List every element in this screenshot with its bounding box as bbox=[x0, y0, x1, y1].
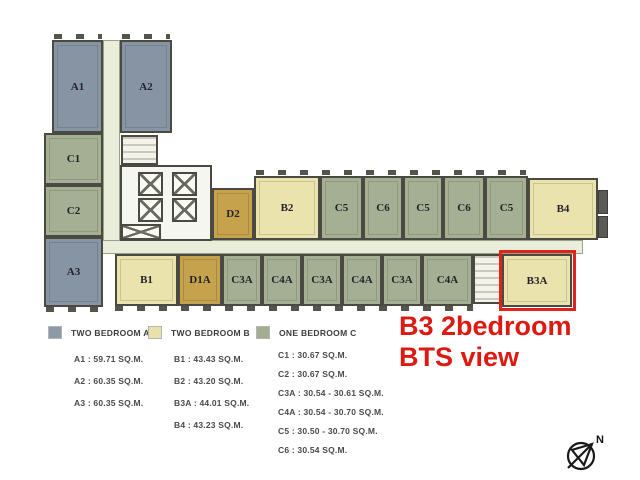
legend-group-1: TWO BEDROOM BB1 : 43.43 SQ.M.B2 : 43.20 … bbox=[148, 326, 250, 436]
elevator-shaft-icon bbox=[138, 172, 163, 196]
elevator-shaft-icon bbox=[138, 198, 163, 222]
north-arrow-icon bbox=[562, 434, 614, 476]
legend-swatch bbox=[148, 326, 162, 339]
legend-item: B4 : 43.23 SQ.M. bbox=[174, 414, 250, 436]
elevator-shaft-icon bbox=[121, 224, 161, 240]
legend-item: C6 : 30.54 SQ.M. bbox=[278, 441, 384, 460]
legend-title: TWO BEDROOM B bbox=[171, 328, 250, 338]
legend-swatch bbox=[48, 326, 62, 339]
balcony-ticks bbox=[46, 307, 103, 312]
annotation-line2: BTS view bbox=[399, 342, 572, 373]
legend-item: B3A : 44.01 SQ.M. bbox=[174, 392, 250, 414]
legend-item: C3A : 30.54 - 30.61 SQ.M. bbox=[278, 384, 384, 403]
unit-c4a-20: C4A bbox=[422, 254, 473, 306]
unit-c5-9: C5 bbox=[403, 176, 443, 240]
stairwell-icon bbox=[473, 254, 502, 304]
unit-c3a-19: C3A bbox=[382, 254, 422, 306]
legend-item: A3 : 60.35 SQ.M. bbox=[74, 392, 150, 414]
unit-b2-6: B2 bbox=[254, 176, 320, 240]
legend-title: TWO BEDROOM A bbox=[71, 328, 150, 338]
unit-c6-10: C6 bbox=[443, 176, 485, 240]
unit-c6-8: C6 bbox=[363, 176, 403, 240]
elevator-shaft-icon bbox=[172, 172, 197, 196]
legend-item: A1 : 59.71 SQ.M. bbox=[74, 348, 150, 370]
unit-c2-3: C2 bbox=[44, 185, 103, 237]
corridor-vertical bbox=[103, 40, 120, 254]
legend-item: B2 : 43.20 SQ.M. bbox=[174, 370, 250, 392]
balcony-b4 bbox=[598, 190, 608, 214]
legend-item: C5 : 30.50 - 30.70 SQ.M. bbox=[278, 422, 384, 441]
unit-c3a-15: C3A bbox=[222, 254, 262, 306]
unit-b4-12: B4 bbox=[528, 178, 598, 240]
elevator-shaft-icon bbox=[172, 198, 197, 222]
b3a-highlight-box bbox=[499, 250, 576, 311]
unit-c4a-18: C4A bbox=[342, 254, 382, 306]
annotation-text: B3 2bedroom BTS view bbox=[399, 311, 572, 373]
unit-d1a-14: D1A bbox=[178, 254, 222, 306]
balcony-ticks bbox=[54, 34, 102, 39]
unit-a1-0: A1 bbox=[52, 40, 103, 133]
unit-c4a-16: C4A bbox=[262, 254, 302, 306]
unit-c5-11: C5 bbox=[485, 176, 528, 240]
unit-c5-7: C5 bbox=[320, 176, 363, 240]
legend-group-0: TWO BEDROOM AA1 : 59.71 SQ.M.A2 : 60.35 … bbox=[48, 326, 150, 414]
balcony-ticks bbox=[122, 34, 170, 39]
unit-a2-1: A2 bbox=[120, 40, 172, 133]
unit-c1-2: C1 bbox=[44, 133, 103, 185]
balcony-b4 bbox=[598, 216, 608, 238]
legend-group-2: ONE BEDROOM CC1 : 30.67 SQ.M.C2 : 30.67 … bbox=[256, 326, 384, 460]
floorplan-image: A1A2C1C2A3D2B2C5C6C5C6C5B4B1D1AC3AC4AC3A… bbox=[0, 0, 640, 480]
legend-item: C1 : 30.67 SQ.M. bbox=[278, 346, 384, 365]
legend-item: A2 : 60.35 SQ.M. bbox=[74, 370, 150, 392]
legend-item: C2 : 30.67 SQ.M. bbox=[278, 365, 384, 384]
unit-a3-4: A3 bbox=[44, 237, 103, 307]
compass-north-label: N bbox=[596, 434, 604, 446]
unit-c3a-17: C3A bbox=[302, 254, 342, 306]
unit-d2-5: D2 bbox=[212, 188, 254, 240]
legend-item: B1 : 43.43 SQ.M. bbox=[174, 348, 250, 370]
legend-title: ONE BEDROOM C bbox=[279, 328, 357, 338]
unit-b1-13: B1 bbox=[115, 254, 178, 306]
legend-swatch bbox=[256, 326, 270, 339]
annotation-line1: B3 2bedroom bbox=[399, 311, 572, 342]
stairwell-icon bbox=[121, 135, 158, 165]
compass: N bbox=[562, 434, 614, 476]
balcony-ticks bbox=[256, 170, 526, 175]
legend-item: C4A : 30.54 - 30.70 SQ.M. bbox=[278, 403, 384, 422]
